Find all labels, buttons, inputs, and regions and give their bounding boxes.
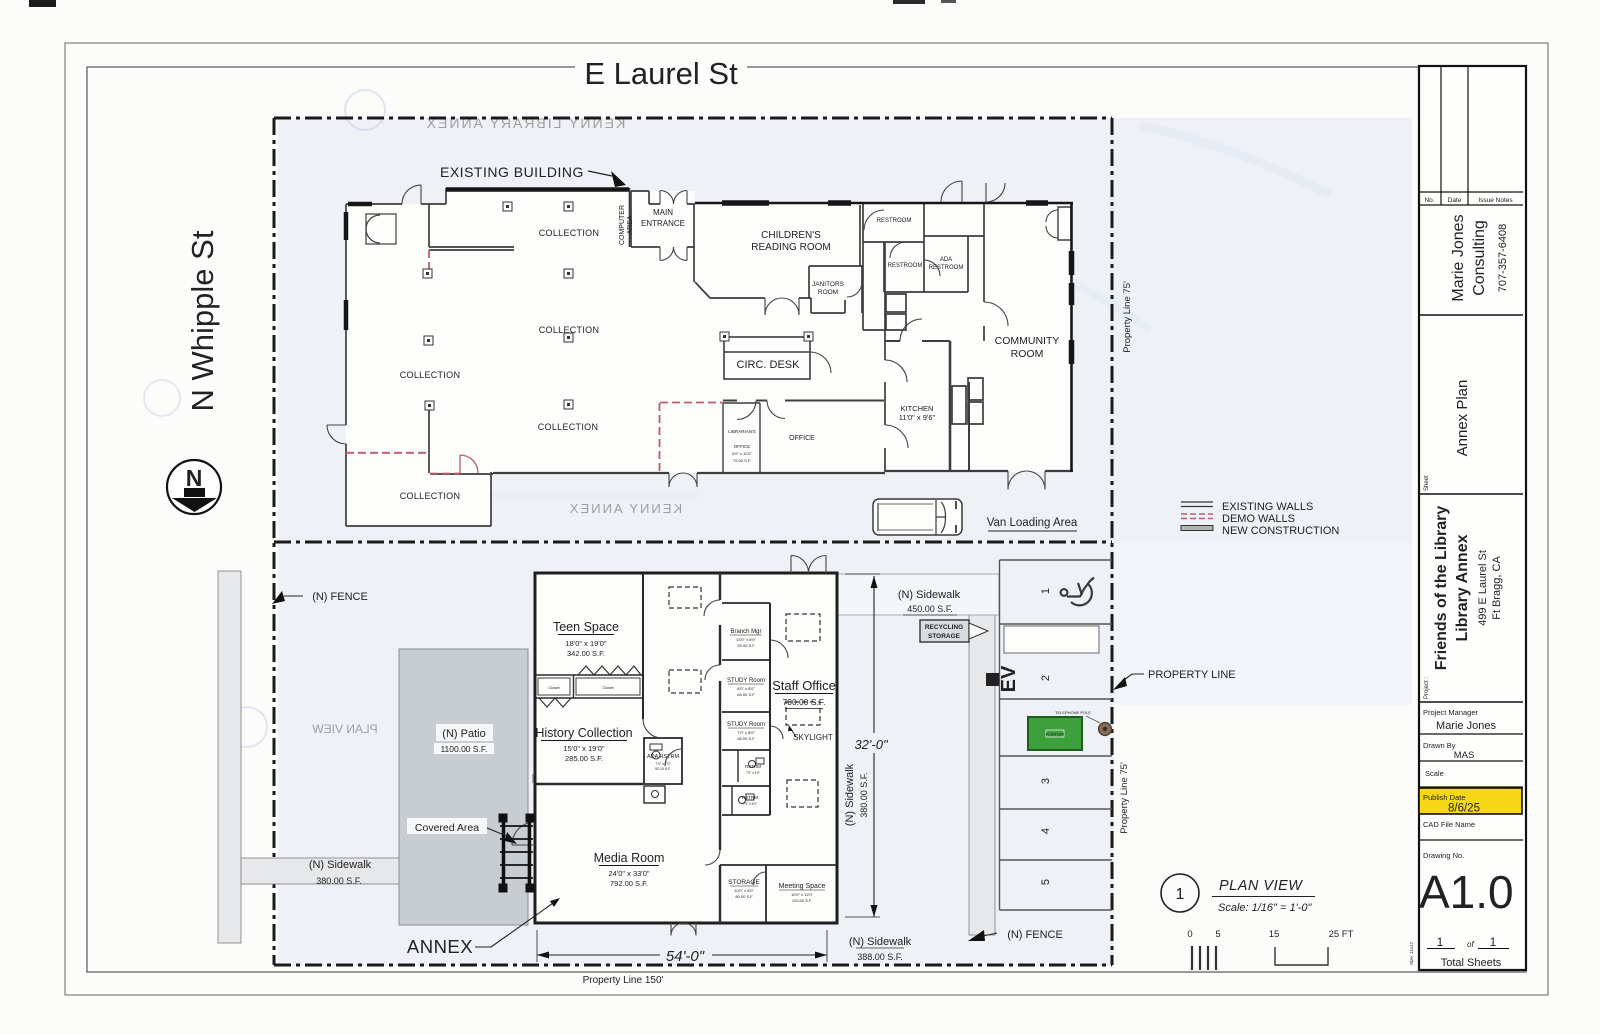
svg-text:STUDY Room: STUDY Room xyxy=(727,722,765,728)
svg-text:SKYLIGHT: SKYLIGHT xyxy=(793,733,833,742)
svg-text:Issue Notes: Issue Notes xyxy=(1478,197,1513,204)
svg-text:EXISTING BUILDING: EXISTING BUILDING xyxy=(440,164,584,180)
svg-text:1: 1 xyxy=(1176,886,1185,903)
svg-text:342.00 S.F.: 342.00 S.F. xyxy=(567,649,605,658)
svg-text:120.00 S.F.: 120.00 S.F. xyxy=(792,898,812,903)
svg-text:(N) FENCE: (N) FENCE xyxy=(1007,929,1063,941)
svg-text:64.00 S.F: 64.00 S.F xyxy=(737,692,755,697)
svg-text:KITCHEN: KITCHEN xyxy=(901,404,934,413)
svg-text:10'0" x 8'0": 10'0" x 8'0" xyxy=(734,888,754,893)
svg-text:MAIN: MAIN xyxy=(653,208,673,217)
svg-text:CAD File Name: CAD File Name xyxy=(1423,820,1475,829)
svg-text:AREA: AREA xyxy=(627,215,634,234)
svg-text:STORAGE: STORAGE xyxy=(928,633,961,640)
svg-text:792.00 S.F.: 792.00 S.F. xyxy=(610,879,648,888)
svg-text:PROPERTY LINE: PROPERTY LINE xyxy=(1148,669,1236,681)
svg-text:Scale: Scale xyxy=(1425,769,1444,778)
svg-text:Total Sheets: Total Sheets xyxy=(1441,957,1502,969)
svg-text:Property Line 75': Property Line 75' xyxy=(1122,281,1133,353)
svg-text:History Collection: History Collection xyxy=(535,726,632,740)
svg-text:of: of xyxy=(1467,940,1474,949)
svg-text:READING ROOM: READING ROOM xyxy=(751,242,830,253)
svg-text:54'-0": 54'-0" xyxy=(666,948,705,965)
svg-text:RSTRM: RSTRM xyxy=(742,795,758,800)
svg-text:(N) Sidewalk: (N) Sidewalk xyxy=(844,763,856,826)
svg-text:1: 1 xyxy=(1437,935,1444,949)
svg-text:EXISTING WALLS: EXISTING WALLS xyxy=(1222,501,1313,513)
svg-text:EV: EV xyxy=(998,665,1020,692)
svg-text:72.00 S.F.: 72.00 S.F. xyxy=(733,458,751,463)
svg-text:52.10 S.F.: 52.10 S.F. xyxy=(655,767,671,771)
svg-text:6'0" x 12'0": 6'0" x 12'0" xyxy=(732,451,752,456)
svg-text:Ft Bragg, CA: Ft Bragg, CA xyxy=(1491,556,1503,620)
svg-text:93.00 S.F: 93.00 S.F xyxy=(737,643,755,648)
svg-text:380.00 S.F.: 380.00 S.F. xyxy=(316,876,362,886)
svg-text:80.00 S.F: 80.00 S.F xyxy=(735,894,753,899)
svg-text:STUDY Room: STUDY Room xyxy=(727,678,765,684)
svg-text:13'0" x 8'0": 13'0" x 8'0" xyxy=(736,637,756,642)
svg-text:No.: No. xyxy=(1424,197,1434,204)
svg-text:PLAN VIEW: PLAN VIEW xyxy=(1219,878,1303,894)
svg-text:Teen Space: Teen Space xyxy=(553,620,619,634)
svg-text:(N) Patio: (N) Patio xyxy=(442,728,485,740)
svg-text:N Whipple St: N Whipple St xyxy=(185,230,220,411)
svg-text:Property Line 75': Property Line 75' xyxy=(1119,762,1130,834)
svg-text:(N) Sidewalk: (N) Sidewalk xyxy=(309,859,372,871)
svg-text:15: 15 xyxy=(1269,929,1280,940)
svg-text:RESTROOM: RESTROOM xyxy=(877,218,912,224)
svg-text:1100.00 S.F.: 1100.00 S.F. xyxy=(440,744,487,754)
svg-text:RESTROOM: RESTROOM xyxy=(888,263,923,269)
svg-text:700.00 S.F.: 700.00 S.F. xyxy=(782,697,825,707)
svg-text:ADA RSTRM: ADA RSTRM xyxy=(647,754,680,760)
svg-text:11'0" x 9'6": 11'0" x 9'6" xyxy=(899,413,936,422)
svg-text:2: 2 xyxy=(1040,675,1052,681)
svg-text:4: 4 xyxy=(1040,828,1052,834)
svg-text:Property Line 150': Property Line 150' xyxy=(583,975,664,986)
svg-text:Project :: Project : xyxy=(1424,677,1430,699)
svg-text:Covered Area: Covered Area xyxy=(415,822,479,834)
svg-text:5: 5 xyxy=(1215,929,1220,940)
svg-text:MAS: MAS xyxy=(1454,750,1475,761)
svg-text:7'0" x 8'0": 7'0" x 8'0" xyxy=(737,730,755,735)
svg-text:DEMO WALLS: DEMO WALLS xyxy=(1222,513,1295,525)
svg-text:450.00 S.F.: 450.00 S.F. xyxy=(907,604,953,614)
svg-text:Scale: 1/16" = 1'-0": Scale: 1/16" = 1'-0" xyxy=(1218,902,1312,914)
svg-text:7'0" x 4'0": 7'0" x 4'0" xyxy=(746,771,760,775)
svg-text:Date: Date xyxy=(1448,197,1462,204)
svg-text:ENTRANCE: ENTRANCE xyxy=(641,219,685,228)
svg-text:CIRC. DESK: CIRC. DESK xyxy=(737,359,801,371)
svg-text:1: 1 xyxy=(1490,935,1497,949)
svg-text:COMPUTER: COMPUTER xyxy=(619,205,626,245)
svg-text:ROOM: ROOM xyxy=(1011,348,1044,360)
svg-text:(N) FENCE: (N) FENCE xyxy=(312,591,368,603)
svg-text:OFFICE: OFFICE xyxy=(734,444,751,449)
svg-text:32'-0": 32'-0" xyxy=(854,737,889,752)
svg-text:Drawn By: Drawn By xyxy=(1423,741,1456,750)
svg-text:Marie Jones: Marie Jones xyxy=(1450,214,1467,301)
svg-text:8'0" x 8'0": 8'0" x 8'0" xyxy=(737,686,755,691)
svg-text:COLLECTION: COLLECTION xyxy=(539,228,600,238)
svg-text:PLAN VIEW: PLAN VIEW xyxy=(312,722,378,736)
svg-text:380.00 S.F.: 380.00 S.F. xyxy=(859,772,869,818)
svg-text:COLLECTION: COLLECTION xyxy=(400,370,461,380)
svg-text:Consulting: Consulting xyxy=(1471,220,1488,296)
svg-text:24'0" x 33'0": 24'0" x 33'0" xyxy=(608,869,649,878)
svg-text:RECYCLING: RECYCLING xyxy=(925,624,963,631)
svg-text:285.00 S.F.: 285.00 S.F. xyxy=(565,754,603,763)
svg-text:ANNEX: ANNEX xyxy=(407,936,473,957)
svg-text:TELEPHONE POLE: TELEPHONE POLE xyxy=(1055,710,1091,715)
svg-text:Publish Date: Publish Date xyxy=(1423,793,1466,802)
svg-text:(N) Sidewalk: (N) Sidewalk xyxy=(849,936,912,948)
svg-text:RESTROOM: RESTROOM xyxy=(929,265,964,271)
svg-text:8/6/25: 8/6/25 xyxy=(1448,803,1480,815)
svg-text:NEW CONSTRUCTION: NEW CONSTRUCTION xyxy=(1222,525,1339,537)
svg-text:Closet: Closet xyxy=(602,685,614,690)
svg-text:(N) Sidewalk: (N) Sidewalk xyxy=(898,589,961,601)
svg-text:5: 5 xyxy=(1040,879,1052,885)
svg-text:Library Annex: Library Annex xyxy=(1454,534,1471,641)
svg-text:Annex Plan: Annex Plan xyxy=(1454,380,1471,457)
svg-text:Drawing No.: Drawing No. xyxy=(1423,851,1464,860)
svg-text:JANITORS: JANITORS xyxy=(812,281,845,288)
svg-text:ADA: ADA xyxy=(940,257,952,263)
svg-text:LIBRARIAN'S: LIBRARIAN'S xyxy=(728,429,756,434)
svg-text:A1.0: A1.0 xyxy=(1419,866,1514,918)
svg-text:707-357-6408: 707-357-6408 xyxy=(1497,224,1509,293)
svg-text:0: 0 xyxy=(1187,929,1192,940)
svg-text:Size: 11x17: Size: 11x17 xyxy=(1409,941,1414,965)
svg-text:Marie Jones: Marie Jones xyxy=(1436,720,1496,732)
svg-text:Branch Mgr: Branch Mgr xyxy=(730,629,761,635)
svg-text:COLLECTION: COLLECTION xyxy=(400,491,461,501)
svg-text:ROOM: ROOM xyxy=(818,289,838,296)
svg-text:STORAGE: STORAGE xyxy=(728,879,760,886)
svg-text:Media Room: Media Room xyxy=(594,851,665,865)
svg-text:388.00 S.F.: 388.00 S.F. xyxy=(857,952,903,962)
svg-text:7'0" x 7'0": 7'0" x 7'0" xyxy=(655,762,671,766)
svg-text:15'0" x 19'0": 15'0" x 19'0" xyxy=(563,744,604,753)
svg-text:25 FT: 25 FT xyxy=(1329,929,1354,940)
svg-text:18'0" x 19'0": 18'0" x 19'0" xyxy=(565,639,606,648)
svg-text:N: N xyxy=(186,465,203,491)
svg-text:Closet: Closet xyxy=(548,685,560,690)
svg-text:7'0" x 5'0": 7'0" x 5'0" xyxy=(743,802,757,806)
svg-text:CHILDREN'S: CHILDREN'S xyxy=(761,230,821,241)
svg-text:Friends of the Library: Friends of the Library xyxy=(1433,506,1450,671)
svg-text:PLANTER: PLANTER xyxy=(1046,732,1065,737)
svg-text:RSTRM: RSTRM xyxy=(745,764,761,769)
svg-text:E Laurel St: E Laurel St xyxy=(584,56,738,91)
svg-text:COLLECTION: COLLECTION xyxy=(538,422,599,432)
svg-text:KENNY ANNEX: KENNY ANNEX xyxy=(568,501,682,516)
svg-text:56.00 S.F: 56.00 S.F xyxy=(737,736,755,741)
svg-text:499 E Laurel St: 499 E Laurel St xyxy=(1477,550,1489,626)
svg-text:Project Manager: Project Manager xyxy=(1423,708,1479,717)
svg-text:Staff Office: Staff Office xyxy=(772,678,836,693)
svg-text:10'0" x 12'0": 10'0" x 12'0" xyxy=(791,892,814,897)
svg-text:COLLECTION: COLLECTION xyxy=(539,325,600,335)
svg-text:Van Loading Area: Van Loading Area xyxy=(987,517,1078,529)
svg-text:OFFICE: OFFICE xyxy=(789,435,815,442)
svg-text:Meeting Space: Meeting Space xyxy=(779,883,826,890)
svg-text:COMMUNITY: COMMUNITY xyxy=(995,335,1060,347)
svg-text:3: 3 xyxy=(1040,778,1052,784)
svg-text:Sheet: Sheet xyxy=(1424,475,1430,491)
svg-text:1: 1 xyxy=(1040,588,1052,594)
